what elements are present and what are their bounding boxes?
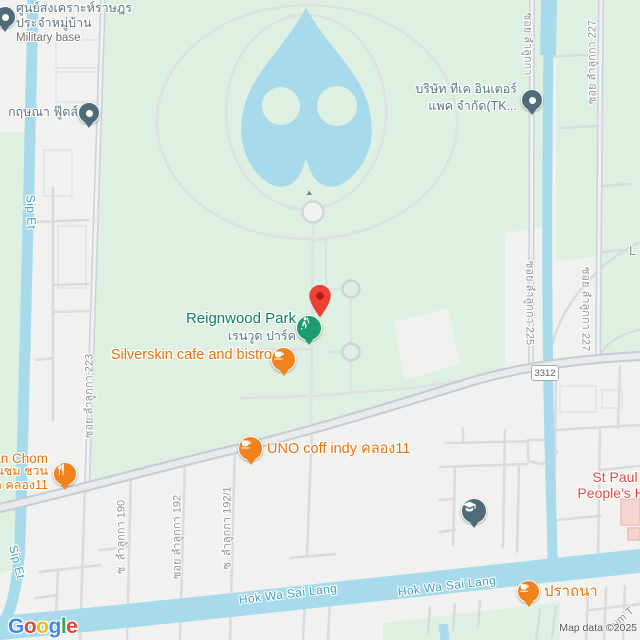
road-label-lam-luk-ka-190: ซ. ลำลูกกา 190 (116, 500, 129, 574)
school-pin-icon[interactable] (461, 498, 487, 524)
map-base-art (0, 0, 640, 640)
center-canal (547, 0, 553, 573)
roundabout (303, 202, 324, 223)
coffee-cup-glyph (518, 581, 531, 594)
road-label-fragment-right: L (629, 243, 636, 258)
lake-island (317, 86, 357, 126)
google-maps-canvas[interactable]: ศูนย์สงเคราะห์ราษฎร ประจำหมู่บ้าน Milita… (0, 0, 640, 640)
route-shield-3312: 3312 (531, 365, 559, 381)
poi-label-pratthana[interactable]: ปราถนา (544, 583, 598, 601)
water-label-sip-et-top: Sip Et (23, 195, 38, 230)
coffee-cup-glyph (272, 348, 286, 362)
road-label-lam-luk-ka-192-1: ซ. ลำลูกกา 192/1 (222, 486, 235, 569)
poi-label-military-base[interactable]: ศูนย์สงเคราะห์ราษฎร ประจำหมู่บ้าน Milita… (16, 1, 132, 46)
krisana-foods-pin-icon[interactable] (78, 102, 100, 124)
suan-chom-restaurant-icon[interactable] (53, 462, 77, 486)
road-label-lam-luk-ka-192: ซอย ลำลูกกา 192 (172, 495, 185, 579)
road-label-lam-luk-ka-225: ซอย ลำลูกกา 225 (523, 261, 536, 345)
roundabout-small (343, 281, 360, 298)
poi-label-reignwood-park[interactable]: Reignwood Park (158, 310, 296, 328)
lake-island (262, 87, 300, 125)
poi-label-reignwood-park-th[interactable]: เรนวูด ปาร์ค (158, 329, 296, 344)
golf-course-icon[interactable] (296, 315, 322, 341)
poi-label-silverskin[interactable]: Silverskin cafe and bistro (98, 347, 272, 364)
destination-pin-icon[interactable] (308, 285, 332, 318)
golfer-glyph (297, 316, 312, 331)
road-label-lam-luk-ka-227-top: ซอย ลำลูกกา 227 (587, 20, 600, 104)
poi-label-tk-interpack[interactable]: บริษัท ทีเค อินเตอร์ แพค จำกัด(TK... (397, 81, 517, 115)
military-base-subtitle: Military base (16, 31, 132, 46)
hospital-building (621, 499, 640, 525)
road-label-lam-luk-ka-partial: ซอย ลำลูกกา (521, 13, 534, 76)
pratthana-cafe-icon[interactable] (517, 580, 540, 603)
road-label-lam-luk-ka-223: ซอย ลำลูกกา 223 (84, 354, 97, 438)
road-label-lam-luk-ka-227-mid: ซอย ลำลูกกา 227 (579, 267, 592, 351)
coffee-cup-glyph (239, 437, 253, 451)
poi-label-uno-coffee[interactable]: UNO coff indy คลอง11 (267, 441, 410, 458)
graduation-cap-glyph (462, 499, 477, 514)
poi-label-st-paul-hospital[interactable]: St Paul People's Ho (570, 470, 640, 501)
tk-interpack-pin-icon[interactable] (521, 89, 543, 111)
map-data-attribution: Map data ©2025 (559, 622, 637, 634)
uno-coffee-icon[interactable] (238, 436, 263, 461)
poi-label-suan-chom[interactable]: an Chom วนชม ชวน า คลอง11 (0, 452, 48, 492)
silverskin-cafe-icon[interactable] (271, 347, 296, 372)
fork-knife-glyph (54, 463, 67, 476)
roundabout-small (343, 344, 360, 361)
google-logo[interactable]: Google (8, 615, 77, 639)
poi-label-krisana-foods[interactable]: กฤษณา ฟู๊ดส์ (2, 105, 78, 120)
